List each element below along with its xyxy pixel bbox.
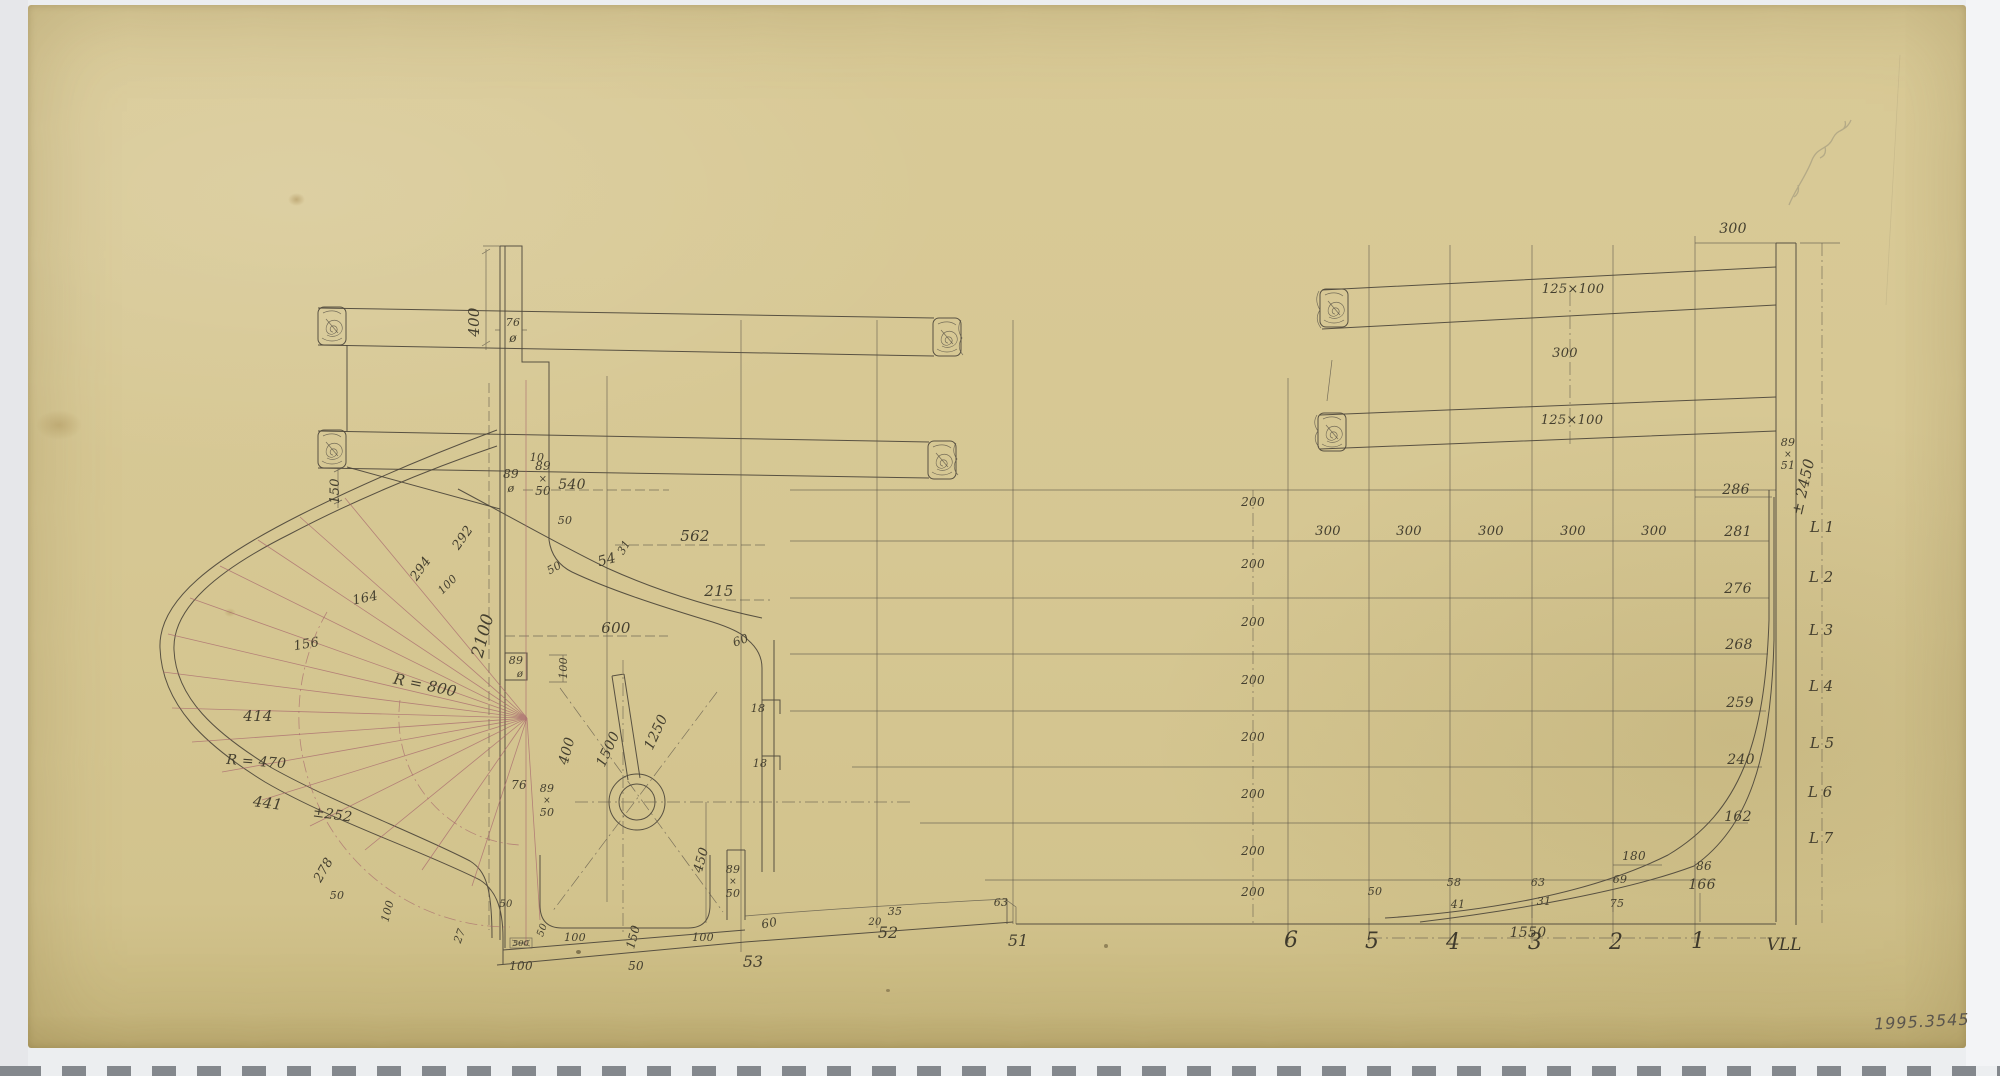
dim-label: 6 — [1284, 928, 1298, 953]
dim-label: 27 — [451, 927, 469, 946]
dim-label: 540 — [558, 477, 586, 493]
dim-label: 89 — [1781, 436, 1796, 449]
technical-drawing: 40076ø1501089ø89×50540505056254312156006… — [0, 0, 2000, 1076]
dim-label: 500 — [513, 939, 529, 948]
dim-label: 200 — [1240, 495, 1265, 509]
dim-label: 50 — [330, 889, 345, 902]
station-lines — [1288, 236, 1695, 943]
dim-label: 300 — [1396, 524, 1422, 539]
dim-label: 600 — [601, 619, 631, 637]
left-wales — [318, 307, 963, 509]
dim-label: 292 — [449, 523, 477, 553]
dim-label: 286 — [1721, 482, 1750, 498]
film-strip-sprockets — [0, 1066, 2000, 1076]
dim-label: 50 — [726, 887, 741, 900]
dim-label: 53 — [743, 952, 763, 971]
dim-label: L 6 — [1807, 783, 1833, 801]
dim-label: 41 — [1450, 898, 1466, 911]
dim-label: 63 — [994, 896, 1009, 909]
dim-label: 240 — [1726, 752, 1755, 768]
dim-label: 100 — [692, 931, 714, 944]
dim-label: L 3 — [1808, 621, 1833, 639]
dim-label: 166 — [1688, 877, 1716, 893]
dim-label: VLL — [1767, 935, 1802, 955]
stem-curve — [1016, 490, 1776, 924]
dimension-labels: 40076ø1501089ø89×50540505056254312156006… — [225, 221, 1834, 973]
dim-label: 50 — [628, 959, 644, 973]
dim-label: 164 — [351, 589, 379, 609]
bow-stem-view — [790, 236, 1840, 943]
dim-label: 60 — [731, 631, 751, 650]
dim-label: L 4 — [1808, 677, 1833, 695]
dim-label: 18 — [751, 702, 766, 715]
dim-label: 51 — [1781, 459, 1796, 472]
dim-label: 150 — [328, 478, 343, 504]
dim-label: 86 — [1696, 859, 1712, 873]
dim-label: 1500 — [593, 729, 623, 769]
dim-label: 281 — [1723, 524, 1752, 540]
pencil-note — [1789, 55, 1900, 305]
dim-label: 50 — [535, 484, 551, 498]
scanned-drawing-stage: 40076ø1501089ø89×50540505056254312156006… — [0, 0, 2000, 1076]
dim-label: 562 — [680, 527, 710, 545]
dim-label: 75 — [1610, 897, 1625, 910]
dim-label: 400 — [465, 307, 483, 338]
dim-label: 89 — [535, 459, 551, 473]
dim-label: 215 — [703, 582, 734, 600]
dim-label: 5 — [1365, 929, 1379, 954]
dim-label: 50 — [545, 559, 564, 578]
dim-label: 31 — [1537, 895, 1552, 908]
waterlines — [790, 490, 1776, 880]
dim-label: 35 — [888, 905, 903, 918]
dim-label: 200 — [1240, 615, 1265, 629]
dim-label: 69 — [1613, 873, 1628, 886]
dimension-lines — [1007, 243, 1840, 938]
dim-label: 400 — [556, 736, 579, 768]
dim-label: 300 — [1478, 524, 1504, 539]
dim-label: 180 — [1622, 849, 1646, 863]
dim-label: 200 — [1240, 787, 1265, 801]
dim-label: 2100 — [467, 612, 498, 661]
stem-head — [482, 246, 567, 948]
dim-label: 50 — [540, 806, 555, 819]
stem-post — [1776, 243, 1796, 925]
dim-label: 100 — [435, 572, 460, 597]
dim-label: 200 — [1240, 673, 1265, 687]
dim-label: R = 470 — [225, 752, 287, 772]
dim-label: 125×100 — [1541, 413, 1604, 428]
dim-label: L 1 — [1809, 518, 1834, 536]
dim-label: 300 — [1315, 524, 1341, 539]
dim-label: 156 — [292, 635, 320, 654]
dim-label: L 2 — [1808, 568, 1833, 586]
dim-label: 200 — [1240, 844, 1265, 858]
dim-label: 100 — [564, 931, 586, 944]
dim-label: 31 — [615, 538, 634, 557]
dim-label: 52 — [878, 923, 898, 942]
dim-label: 450 — [691, 846, 712, 876]
dim-label: R = 800 — [391, 669, 459, 700]
dim-label: 259 — [1725, 695, 1754, 711]
dim-label: 50 — [1368, 885, 1383, 898]
dim-label: 3 — [1528, 930, 1542, 955]
dim-label: L 7 — [1808, 829, 1834, 847]
dim-label: 89 — [726, 863, 741, 876]
dim-label: 294 — [407, 554, 435, 584]
dim-label: 100 — [379, 899, 397, 924]
dim-label: 89 — [540, 782, 555, 795]
dim-label: × — [729, 877, 737, 887]
dim-label: 276 — [1723, 581, 1752, 597]
dim-label: 300 — [1552, 346, 1578, 361]
dim-label: 200 — [1240, 885, 1265, 899]
dim-label: 58 — [1447, 876, 1462, 889]
dim-label: 18 — [753, 757, 768, 770]
dim-label: 200 — [1240, 730, 1265, 744]
dim-label: 4 — [1445, 930, 1460, 955]
dim-label: 268 — [1724, 637, 1753, 653]
dim-label: 89 — [509, 654, 524, 667]
dim-label: × — [543, 796, 551, 806]
dim-label: 200 — [1240, 557, 1265, 571]
dim-label: 414 — [242, 707, 273, 725]
dim-label: 54 — [596, 550, 618, 570]
dim-label: 50 — [499, 899, 513, 910]
dim-label: 51 — [1008, 931, 1028, 950]
dim-label: 89 — [503, 467, 519, 481]
dim-label: 162 — [1724, 809, 1752, 825]
stern-frame-view — [160, 246, 1016, 965]
radial-construction-fan — [163, 380, 540, 945]
dim-label: 50 — [558, 514, 573, 527]
dim-label: 60 — [760, 915, 778, 932]
dim-label: 1250 — [641, 712, 671, 752]
dim-label: 300 — [1641, 524, 1667, 539]
dim-label: 1 — [1691, 929, 1705, 954]
dim-label: ø — [516, 669, 524, 680]
dim-label: L 5 — [1809, 734, 1834, 752]
dim-label: 441 — [251, 792, 284, 814]
dim-label: 76 — [511, 778, 527, 792]
dim-label: ø — [508, 331, 517, 345]
dim-label: 300 — [1719, 221, 1747, 237]
dim-label: 63 — [1531, 876, 1546, 889]
dim-label: 300 — [1560, 524, 1586, 539]
dim-label: 278 — [311, 855, 337, 886]
dim-label: 76 — [506, 316, 521, 329]
dim-label: 100 — [557, 657, 570, 679]
dim-label: 125×100 — [1542, 282, 1605, 297]
dim-label: 2 — [1608, 930, 1623, 955]
dim-label: ø — [507, 482, 515, 495]
dim-label: 100 — [509, 959, 533, 973]
